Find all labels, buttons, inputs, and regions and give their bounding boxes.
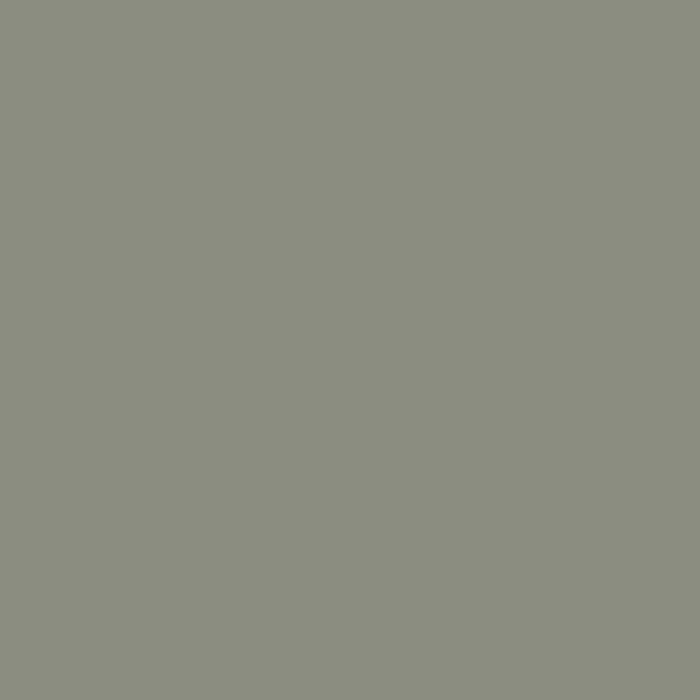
- map-canvas[interactable]: [0, 0, 700, 700]
- paris-map-svg: [0, 0, 700, 700]
